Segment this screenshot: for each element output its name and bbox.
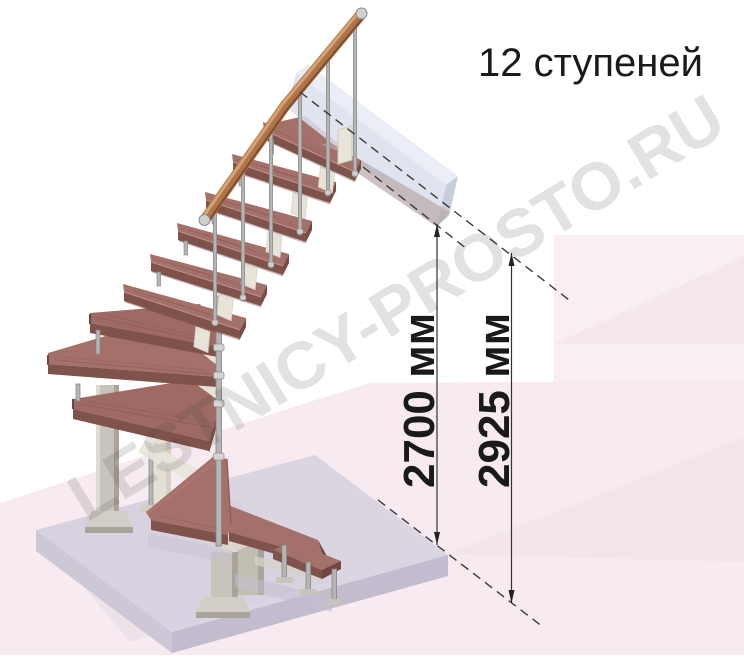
svg-text:2700 мм: 2700 мм <box>395 313 444 488</box>
svg-text:2925 мм: 2925 мм <box>470 313 519 488</box>
svg-text:12 ступеней: 12 ступеней <box>478 41 703 85</box>
